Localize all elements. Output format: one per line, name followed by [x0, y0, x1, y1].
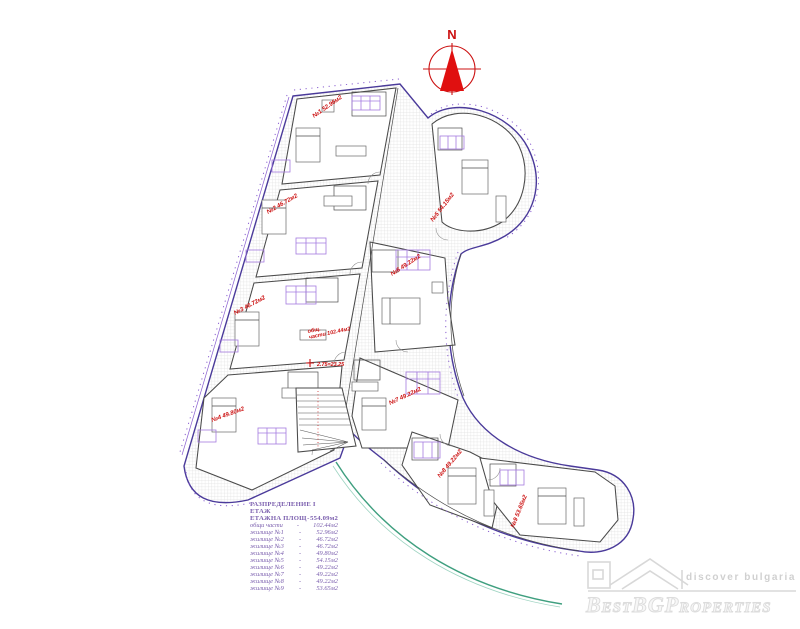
legend-row: жилище №3-46.72м2: [250, 543, 338, 550]
bed: [362, 398, 386, 430]
legend-row: жилище №7-49.22м2: [250, 571, 338, 578]
wardrobe: [496, 196, 506, 222]
legend-row: жилище №1-52.96м2: [250, 529, 338, 536]
wardrobe: [336, 146, 366, 156]
watermark-brand: BestBGProperties: [586, 592, 772, 618]
wardrobe: [574, 498, 584, 526]
desk: [352, 382, 378, 391]
bed: [448, 468, 476, 504]
compass-needle: [440, 49, 464, 91]
bed: [382, 298, 420, 324]
watermark-tagline: discover bulgaria: [686, 572, 796, 583]
bed: [462, 160, 488, 194]
legend: РАЗПРЕДЕЛЕНИЕ I ЕТАЖ ЕТАЖНА ПЛОЩ - 554.0…: [250, 501, 338, 592]
floor-plan-drawing: №1 52.96м2 №2 46.72м2 №3 46.72м2 №4 49.8…: [0, 0, 800, 629]
legend-row: жилище №8-49.22м2: [250, 578, 338, 585]
legend-row: общи части-102.44м2: [250, 522, 338, 529]
legend-title: РАЗПРЕДЕЛЕНИЕ I ЕТАЖ: [250, 501, 338, 515]
legend-row: ЕТАЖНА ПЛОЩ - 554.09м2: [250, 515, 338, 522]
bed: [235, 312, 259, 346]
bed: [296, 128, 320, 162]
wardrobe: [484, 490, 494, 516]
north-letter: N: [447, 27, 456, 42]
legend-row: жилище №9-53.65м2: [250, 585, 338, 592]
legend-row: жилище №4-49.80м2: [250, 550, 338, 557]
legend-row: жилище №6-49.22м2: [250, 564, 338, 571]
table: [432, 282, 443, 293]
legend-row: жилище №2-46.72м2: [250, 536, 338, 543]
north-arrow: N: [423, 27, 481, 95]
kitchen-counter: [324, 196, 352, 206]
watermark: discover bulgaria BestBGProperties: [584, 551, 800, 629]
bed: [538, 488, 566, 524]
legend-row: жилище №5-54.15м2: [250, 557, 338, 564]
level-mark-text: 2.75=23.25: [316, 362, 345, 368]
floor-plan-page: №1 52.96м2 №2 46.72м2 №3 46.72м2 №4 49.8…: [0, 0, 800, 629]
